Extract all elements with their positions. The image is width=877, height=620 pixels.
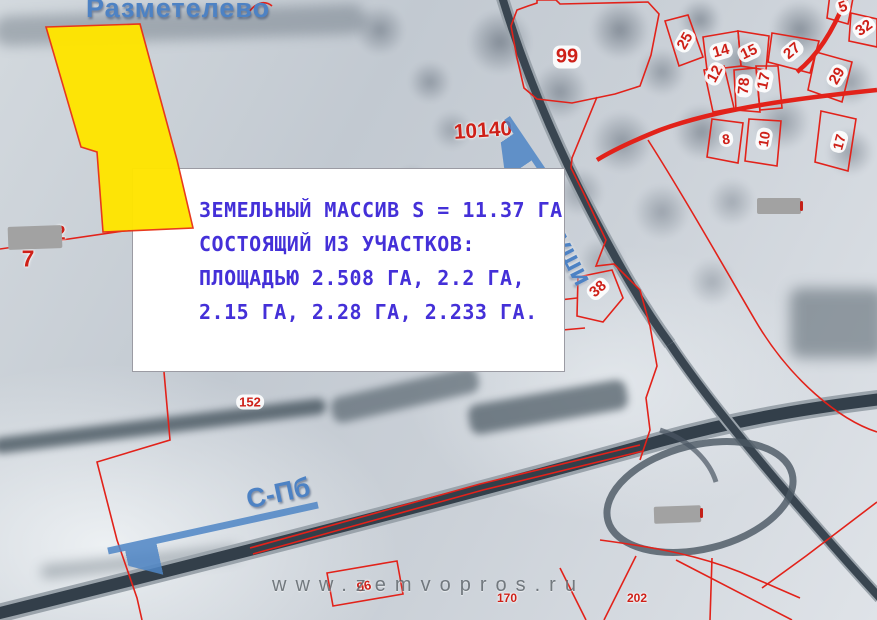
highlight-layer: [0, 0, 877, 620]
watermark: www.zemvopros.ru: [272, 574, 585, 597]
parcel-highlight-polygon: [46, 24, 193, 232]
